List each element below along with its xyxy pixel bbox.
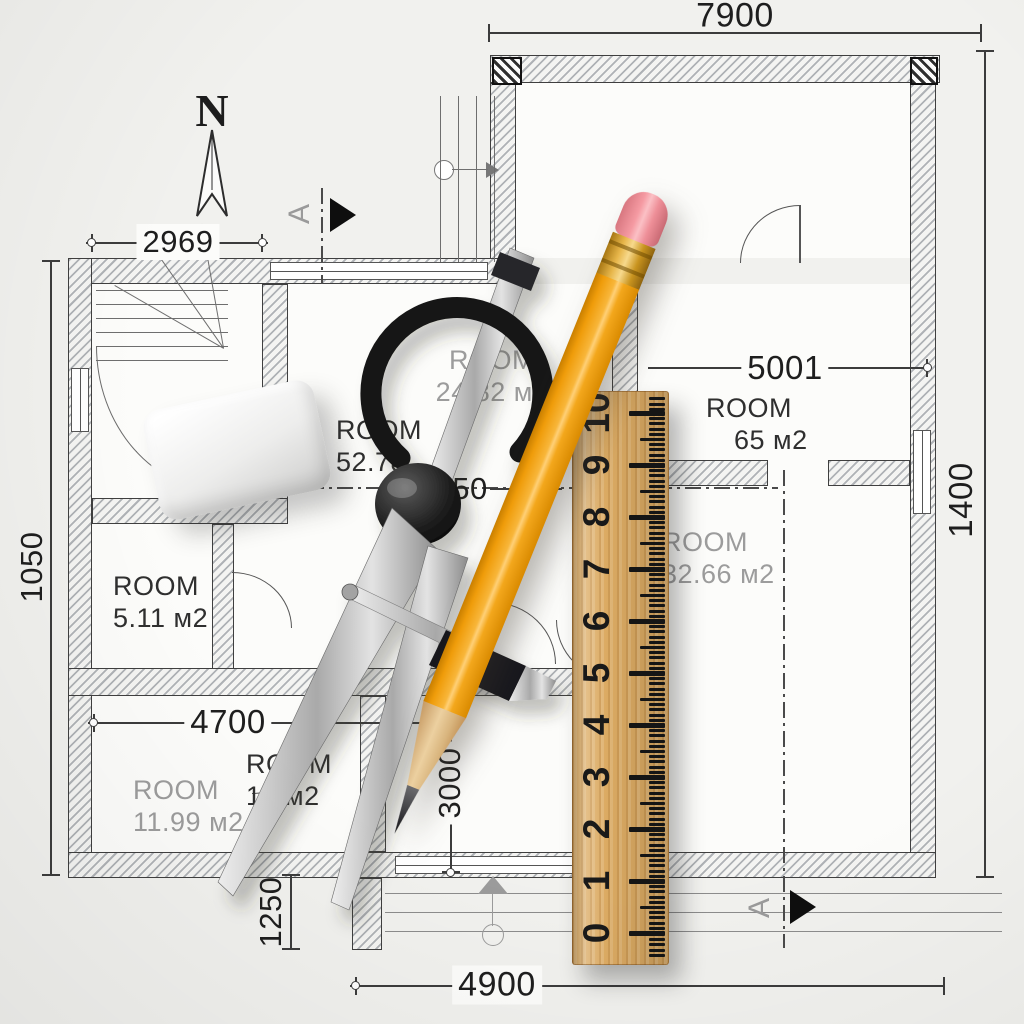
- ruler-number: 3: [576, 756, 618, 798]
- dimension-bottom-width-label: 4900: [452, 966, 542, 1005]
- ruler-tick: [649, 954, 665, 957]
- ruler-tick: [629, 463, 665, 468]
- room-label-2: ROOM52.78: [336, 414, 422, 479]
- ruler-tick: [629, 619, 665, 624]
- ruler-tick: [649, 428, 665, 431]
- ruler-tick: [649, 745, 665, 748]
- ruler-tick: [649, 599, 665, 602]
- ruler-tick: [649, 433, 665, 436]
- dimension-bottom-width: [350, 985, 945, 987]
- dimension-left-side-label: 1050: [14, 532, 50, 603]
- ruler-tick: [649, 641, 665, 644]
- ruler-tick: [649, 584, 665, 587]
- ruler-tick: [640, 438, 665, 441]
- column-top-left: [492, 57, 522, 85]
- dimension-top-width-label: 7900: [696, 0, 774, 36]
- ruler-tick: [649, 766, 665, 769]
- north-arrow-icon: [192, 128, 232, 228]
- ruler-tick: [649, 474, 665, 477]
- entrance-steps: [385, 890, 1005, 940]
- ruler-tick: [649, 833, 665, 836]
- ruler-tick: [649, 885, 665, 888]
- ruler-tick: [649, 521, 665, 524]
- ruler-tick: [649, 708, 665, 711]
- ruler-tick: [649, 838, 665, 841]
- ruler-tick: [640, 750, 665, 753]
- ruler-tick: [649, 859, 665, 862]
- ruler-tick: [649, 703, 665, 706]
- ruler-tick: [649, 714, 665, 717]
- stair-direction-circle: [434, 160, 454, 180]
- ruler-tick: [649, 469, 665, 472]
- ruler-tick: [640, 542, 665, 545]
- ruler-tick: [649, 823, 665, 826]
- ruler-tick: [649, 500, 665, 503]
- ruler-number: 7: [576, 548, 618, 590]
- ruler-tick: [649, 656, 665, 659]
- ruler-tick: [649, 651, 665, 654]
- ruler-number: 4: [576, 704, 618, 746]
- ruler-tick: [629, 775, 665, 780]
- section-label-bottom: A: [743, 898, 777, 918]
- upper-building-interior: [516, 82, 910, 258]
- ruler-tick: [640, 646, 665, 649]
- ruler-tick: [649, 547, 665, 550]
- wall-interior-vertical-b: [212, 524, 234, 674]
- dimension-right-side: [984, 50, 986, 878]
- ruler-tick: [649, 849, 665, 852]
- ruler-number: 8: [576, 496, 618, 538]
- ruler-tick: [649, 864, 665, 867]
- room-label-5: ROOM5.11 м2: [113, 570, 208, 635]
- ruler-tick: [649, 760, 665, 763]
- ruler-tick: [649, 682, 665, 685]
- room-label-7: ROOM11.99 м2: [133, 774, 244, 839]
- ruler-tick: [649, 662, 665, 665]
- ruler-tick: [649, 403, 665, 406]
- ruler-tick: [649, 729, 665, 732]
- ruler-tick: [649, 911, 665, 914]
- ruler-tick: [629, 671, 665, 676]
- ruler-tick: [649, 573, 665, 576]
- ruler-tick: [649, 448, 665, 451]
- wall-porch-stub: [352, 878, 382, 950]
- section-arrow-bottom-icon: [790, 890, 816, 924]
- dimension-middle-width-label: 4700: [184, 703, 271, 741]
- ruler-tick: [649, 485, 665, 488]
- ruler-tick: [649, 786, 665, 789]
- ruler-number: 6: [576, 600, 618, 642]
- room-label-1: ROOM24.82 м2: [432, 344, 552, 409]
- ruler-tick: [640, 802, 665, 805]
- ruler-tick: [649, 807, 665, 810]
- ruler-tick: [649, 734, 665, 737]
- ruler-number: 2: [576, 808, 618, 850]
- ruler-tick: [640, 490, 665, 493]
- ruler-tick: [649, 870, 665, 873]
- entrance-arrow-circle: [482, 924, 504, 946]
- ruler-tick: [649, 422, 665, 425]
- floor-plan-scene: A A N 7900 2969 5001 1400 1050 4700 3000: [0, 0, 1024, 1024]
- window-left: [71, 368, 89, 432]
- ruler-tick: [649, 693, 665, 696]
- ruler-tick: [649, 604, 665, 607]
- ruler-scale: 109876543210: [572, 391, 669, 965]
- ruler-tick: [649, 506, 665, 509]
- column-top-right: [910, 57, 938, 85]
- ruler-tick: [649, 797, 665, 800]
- ruler-tick: [640, 698, 665, 701]
- ruler-tick: [649, 443, 665, 446]
- ruler-tick: [649, 688, 665, 691]
- entrance-arrow-stem: [492, 894, 493, 926]
- section-line-bottom: [783, 470, 785, 948]
- section-label-top: A: [283, 204, 317, 224]
- ruler-tick: [629, 411, 665, 416]
- ruler-tick: [649, 454, 665, 457]
- section-line-top: [321, 188, 323, 284]
- ruler-tick: [649, 677, 665, 680]
- ruler: 109876543210: [572, 391, 669, 965]
- ruler-tick: [649, 875, 665, 878]
- window-right: [913, 430, 931, 514]
- ruler-tick: [649, 630, 665, 633]
- ruler-tick: [649, 771, 665, 774]
- room-label-3: ROOM65 м2: [706, 392, 808, 457]
- window-top: [270, 262, 488, 280]
- ruler-tick: [649, 938, 665, 941]
- ruler-tick: [649, 755, 665, 758]
- staircase-top-center: [440, 96, 496, 262]
- ruler-tick: [629, 567, 665, 572]
- ruler-tick: [649, 922, 665, 925]
- ruler-tick: [649, 781, 665, 784]
- ruler-tick: [649, 495, 665, 498]
- wall-left: [68, 258, 92, 878]
- ruler-tick: [649, 625, 665, 628]
- ruler-tick: [649, 812, 665, 815]
- dimension-left-side: [50, 260, 52, 876]
- ruler-tick: [649, 844, 665, 847]
- ruler-tick: [649, 537, 665, 540]
- wall-top-upper: [490, 55, 940, 83]
- ruler-tick: [649, 667, 665, 670]
- entrance-arrow-icon: [478, 876, 508, 894]
- ruler-tick: [649, 532, 665, 535]
- ruler-tick: [649, 397, 665, 400]
- ruler-tick: [649, 949, 665, 952]
- ruler-tick: [649, 417, 665, 420]
- ruler-tick: [629, 931, 665, 936]
- ruler-tick: [629, 515, 665, 520]
- ruler-tick: [649, 558, 665, 561]
- door-leaf-upper-right: [799, 205, 801, 263]
- ruler-number: 0: [576, 912, 618, 954]
- dimension-partial-label: 50: [452, 471, 487, 507]
- ruler-tick: [649, 563, 665, 566]
- dimension-lower-left-label: 1250: [253, 877, 289, 948]
- ruler-tick: [649, 636, 665, 639]
- wall-interior-right-2: [828, 460, 910, 486]
- ruler-tick: [649, 578, 665, 581]
- ruler-tick: [649, 719, 665, 722]
- ruler-tick: [649, 589, 665, 592]
- ruler-tick: [649, 615, 665, 618]
- window-bottom: [395, 856, 585, 874]
- ruler-tick: [649, 552, 665, 555]
- room-label-4: ROOM32.66 м2: [662, 526, 775, 591]
- ruler-tick: [649, 459, 665, 462]
- ruler-tick: [649, 480, 665, 483]
- ruler-tick: [649, 890, 665, 893]
- ruler-tick: [649, 943, 665, 946]
- ruler-tick: [649, 526, 665, 529]
- ruler-tick: [649, 901, 665, 904]
- ruler-tick: [640, 906, 665, 909]
- ruler-tick: [640, 854, 665, 857]
- ruler-tick: [649, 896, 665, 899]
- ruler-tick: [629, 723, 665, 728]
- ruler-tick: [629, 827, 665, 832]
- dimension-right-room-label: 5001: [741, 349, 828, 387]
- ruler-number: 1: [576, 860, 618, 902]
- ruler-number: 9: [576, 444, 618, 486]
- ruler-tick: [649, 511, 665, 514]
- ruler-tick: [649, 818, 665, 821]
- ruler-number: 5: [576, 652, 618, 694]
- ruler-tick: [649, 610, 665, 613]
- wall-interior-horizontal-b: [68, 668, 620, 696]
- ruler-tick: [649, 916, 665, 919]
- ruler-tick: [640, 594, 665, 597]
- room-label-6: ROOM12 м2: [246, 748, 332, 813]
- dimension-upper-left-label: 2969: [137, 224, 220, 260]
- ruler-tick: [649, 927, 665, 930]
- dimension-right-side-label: 1400: [942, 462, 980, 537]
- ruler-tick: [649, 740, 665, 743]
- section-arrow-top-icon: [330, 198, 356, 232]
- ruler-tick: [649, 792, 665, 795]
- ruler-tick: [629, 879, 665, 884]
- dimension-lower-left: [290, 874, 292, 950]
